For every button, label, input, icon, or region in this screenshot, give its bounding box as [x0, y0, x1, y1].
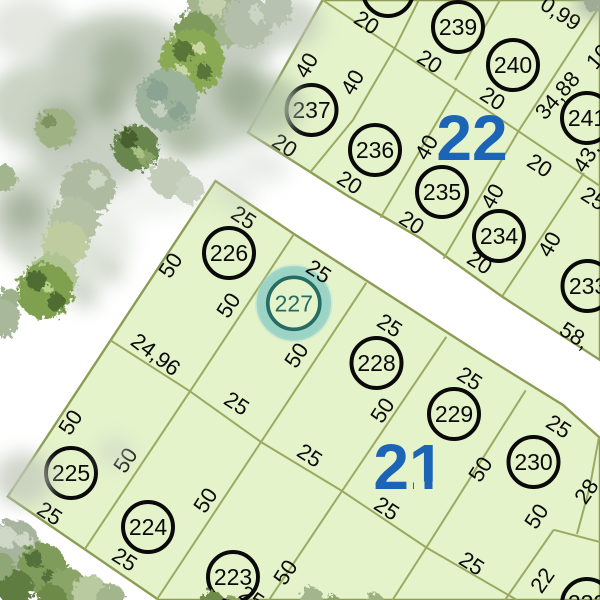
svg-text:240: 240 [494, 52, 532, 78]
svg-text:226: 226 [210, 240, 248, 266]
svg-text:236: 236 [356, 137, 394, 163]
svg-text:224: 224 [129, 514, 168, 540]
svg-text:233: 233 [569, 273, 600, 299]
svg-text:234: 234 [480, 223, 519, 249]
svg-text:228: 228 [357, 350, 395, 376]
svg-text:235: 235 [423, 179, 461, 205]
svg-text:227: 227 [275, 290, 313, 316]
svg-text:225: 225 [52, 460, 90, 486]
svg-text:241: 241 [568, 105, 600, 131]
svg-text:232: 232 [568, 590, 600, 600]
svg-text:239: 239 [439, 14, 477, 40]
svg-text:229: 229 [435, 401, 473, 427]
svg-text:230: 230 [514, 449, 552, 475]
